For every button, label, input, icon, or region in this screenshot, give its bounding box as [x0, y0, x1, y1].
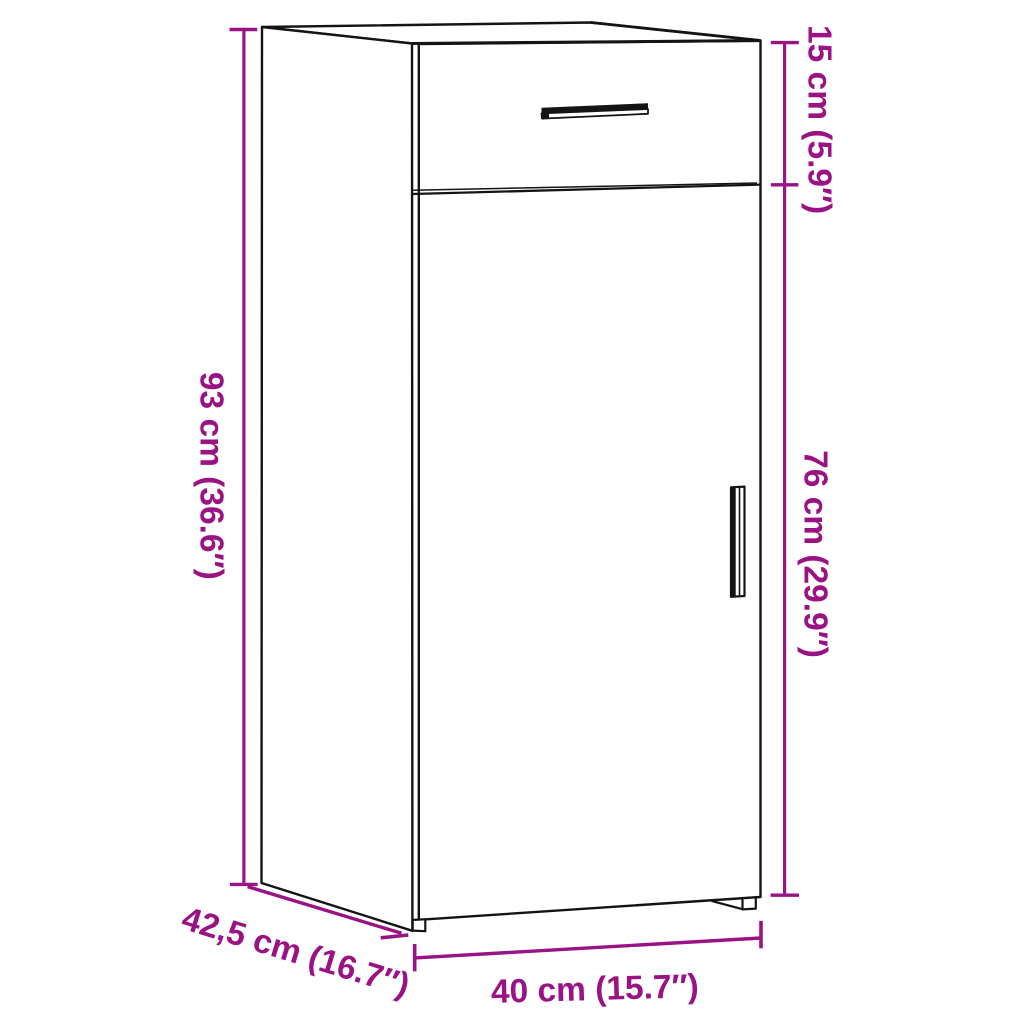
svg-text:76 cm (29.9″): 76 cm (29.9″) [797, 450, 834, 658]
svg-text:93 cm (36.6″): 93 cm (36.6″) [192, 372, 229, 580]
svg-text:40 cm (15.7″): 40 cm (15.7″) [490, 968, 699, 1011]
svg-text:15 cm (5.9″): 15 cm (5.9″) [801, 25, 838, 214]
